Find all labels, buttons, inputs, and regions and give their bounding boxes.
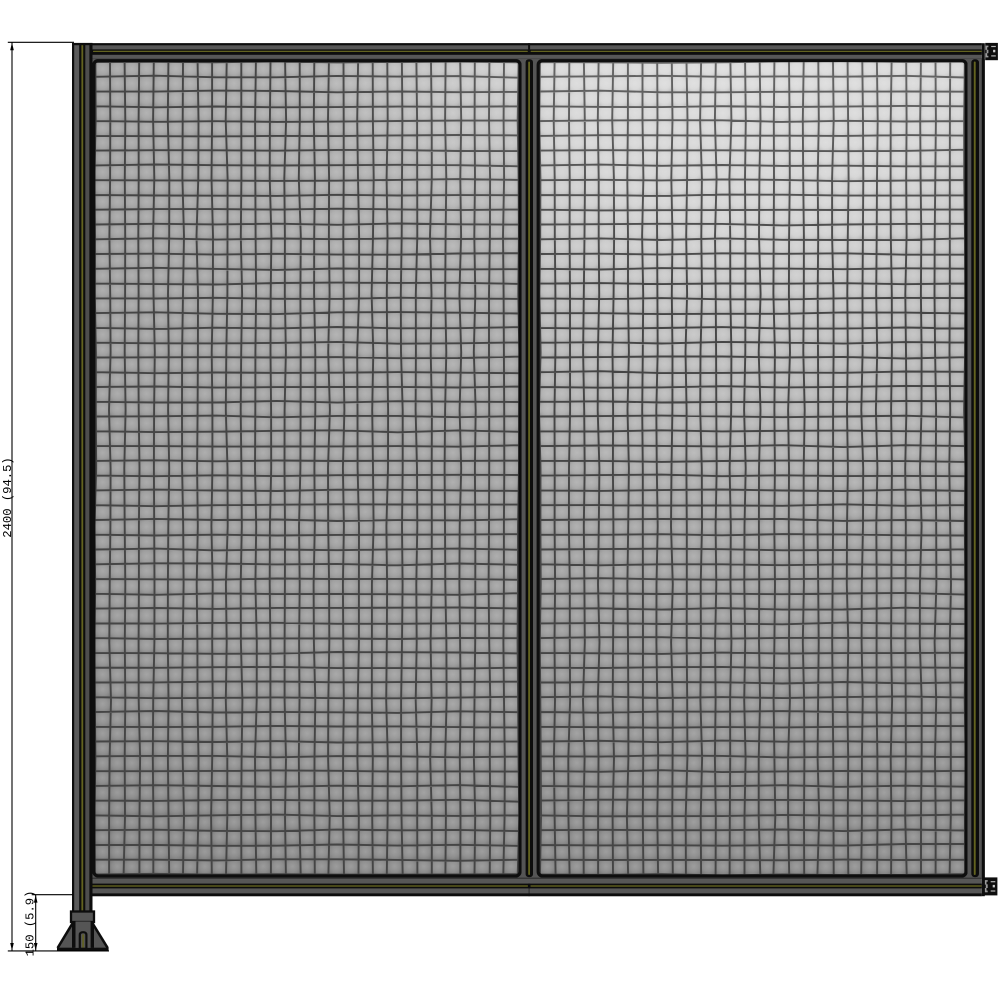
svg-text:2400 (94.5): 2400 (94.5): [1, 457, 15, 537]
svg-text:150 (5.9): 150 (5.9): [24, 891, 38, 957]
